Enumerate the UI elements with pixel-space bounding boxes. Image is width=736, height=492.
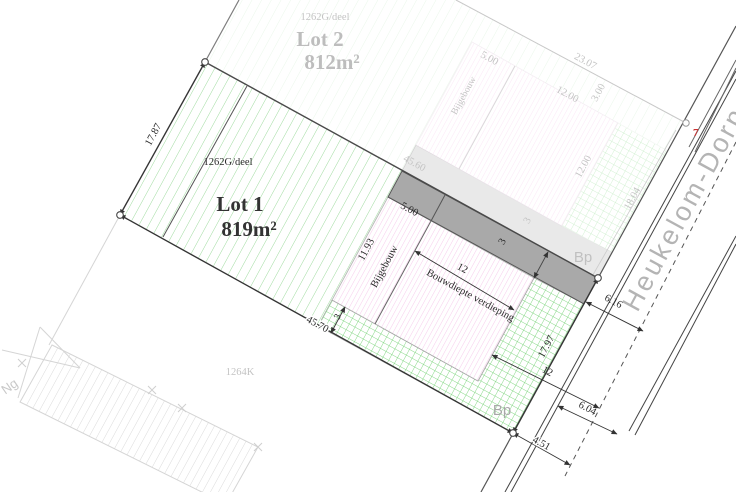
site-plan-canvas: 1262G/deel Lot 2 812m² 45.60 5.00 23.07 … <box>0 0 736 492</box>
road-dim-3: 6.04 <box>576 400 598 419</box>
lot2-parcel-label: 1262G/deel <box>301 12 350 23</box>
neighbor-hatched-strip <box>20 345 258 492</box>
lot2-road-corner-marker <box>683 120 689 126</box>
site-plan: 1262G/deel Lot 2 812m² 45.60 5.00 23.07 … <box>0 0 736 492</box>
lot1-parcel-label: 1262G/deel <box>204 157 253 168</box>
lot2-title: Lot 2 <box>296 27 343 51</box>
lot2-bp-marker-label: Bp <box>574 249 592 266</box>
neighbor-parcel-label: 1264K <box>226 367 255 378</box>
lot1-area: 819m² <box>221 217 276 241</box>
lot1-title: Lot 1 <box>216 192 263 216</box>
marker-west <box>117 212 124 219</box>
west-boundary-extension <box>49 215 120 345</box>
lot1-bp-marker-label: Bp <box>493 402 511 419</box>
lot2-area: 812m² <box>304 50 359 74</box>
marker-northwest <box>202 59 209 66</box>
marker-south-road <box>510 430 517 437</box>
neighbor-ng-label: Ng <box>0 375 21 397</box>
marker-division-road <box>595 275 602 282</box>
house-number-label: 7 <box>693 127 699 139</box>
